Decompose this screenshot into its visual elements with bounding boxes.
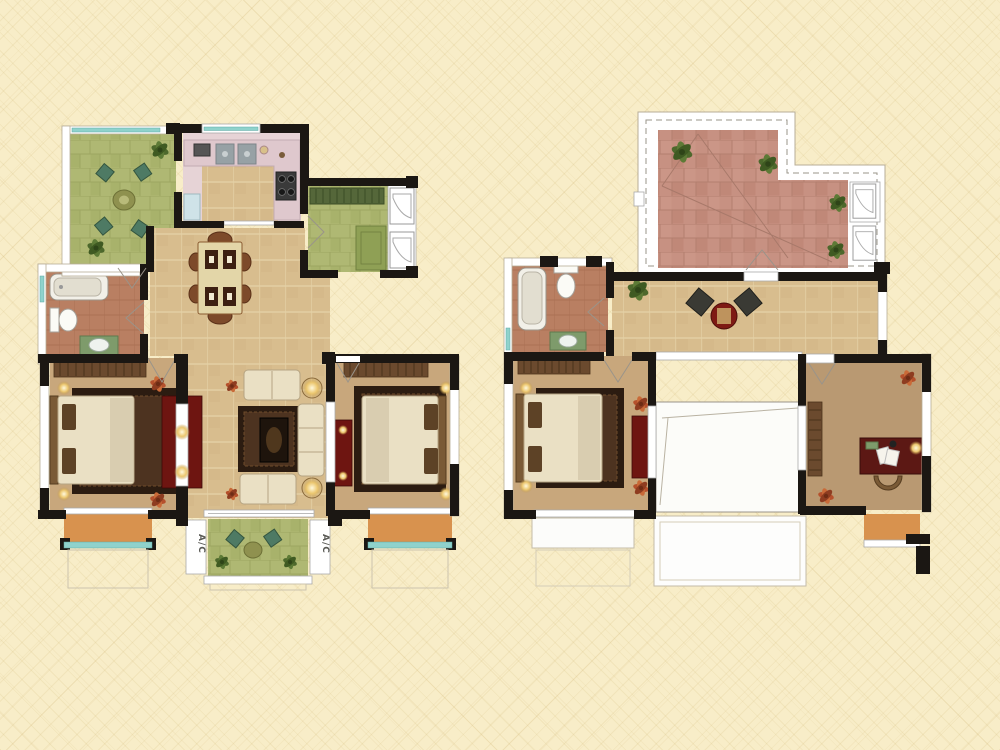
pillow (528, 402, 542, 428)
void-upper (656, 402, 804, 512)
pillow (528, 446, 542, 472)
pillow (424, 404, 438, 430)
hallway-floor (612, 277, 878, 357)
tv-wall-lamp (174, 464, 190, 480)
pillow (62, 404, 76, 430)
bed-headboard (438, 396, 446, 484)
balcony-right-outline (372, 550, 448, 588)
terrace-window (72, 128, 160, 132)
bedroom2f-window-band (534, 510, 636, 517)
floor-plan-image: A/C A/C (0, 0, 1000, 750)
bed-headboard (516, 394, 524, 482)
desk-lamp (909, 441, 923, 455)
toilet-icon (50, 308, 59, 332)
nightstand-lamp (519, 381, 533, 395)
nightstand-lamp (57, 487, 71, 501)
kitchen-appliance (194, 144, 210, 156)
void-opening (654, 352, 806, 586)
pillow (62, 448, 76, 474)
nightstand-lamp (519, 479, 533, 493)
bookshelf-icon (808, 402, 822, 476)
ac-outdoor-unit (390, 188, 414, 224)
kitchen-inner-floor (202, 160, 278, 222)
bathroom-window (40, 276, 44, 302)
ac-box-left: A/C (176, 512, 206, 574)
ac-box-right: A/C (310, 512, 342, 574)
fridge-icon (184, 194, 200, 220)
ac-outdoor-unit (390, 232, 414, 268)
plans-canvas: A/C A/C (0, 0, 1000, 750)
tv-cabinet (632, 416, 650, 478)
side-table-lamp (302, 378, 322, 398)
upper-floor-plan (504, 112, 931, 586)
ac-label: A/C (196, 534, 206, 554)
balcony-left-window (64, 542, 152, 548)
dining-set (189, 232, 251, 324)
void-lower (654, 516, 806, 586)
tv-wall-lamp (174, 424, 190, 440)
balcony-right-window (368, 542, 452, 548)
lower-floor-plan: A/C A/C (38, 123, 459, 590)
ac-outdoor-unit (853, 184, 876, 218)
kitchen-slider-door (224, 221, 274, 225)
nightstand-lamp (57, 381, 71, 395)
ac-outdoor-unit (853, 226, 876, 260)
balcony-right-floor (368, 514, 452, 542)
bathroom2-window (506, 328, 510, 350)
balcony-left-outline (68, 550, 148, 588)
kitchen-window (204, 127, 258, 131)
ac-label: A/C (320, 534, 330, 554)
utility-rug (356, 226, 386, 270)
balcony-left-floor (64, 514, 152, 542)
roof-terrace (634, 112, 885, 276)
side-table-lamp (302, 478, 322, 498)
terrace-ledge (634, 192, 644, 206)
bed-headboard (50, 396, 58, 484)
pillow (424, 448, 438, 474)
utility-bench (310, 188, 384, 204)
sofa-right (298, 404, 324, 476)
